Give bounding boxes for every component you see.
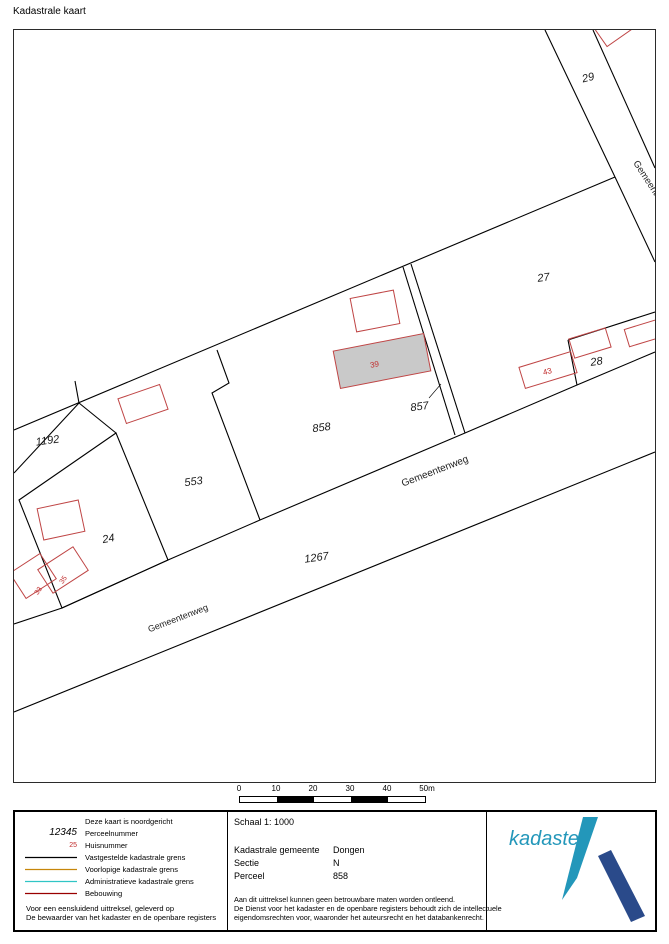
disclaimer-line-1: Aan dit uittreksel kunnen geen betrouwba… xyxy=(234,895,455,904)
parcel-label-1267: 1267 xyxy=(304,550,331,565)
house-numbers: 39 43 35 33 xyxy=(34,359,554,596)
parcel-label-857: 857 xyxy=(410,400,431,415)
parcel-label-24: 24 xyxy=(100,532,115,546)
scale-tick: 0 xyxy=(237,784,241,793)
footer-divider-1 xyxy=(227,812,228,930)
scale-tick: 30 xyxy=(346,784,355,793)
legend-label-voorlopige-grens: Voorlopige kadastrale grens xyxy=(85,865,178,874)
info-value-sectie: N xyxy=(333,858,340,868)
legend-label-administratieve-grens: Administratieve kadastrale grens xyxy=(85,877,194,886)
parcel-label-1192: 1192 xyxy=(35,433,60,448)
parcel-boundaries xyxy=(14,30,655,712)
scale-tick: 40 xyxy=(383,784,392,793)
boundary-line xyxy=(75,381,79,403)
parcel-labels: 29 27 28 858 857 553 1192 24 1267 xyxy=(35,71,604,566)
map-frame: 29 27 28 858 857 553 1192 24 1267 39 43 … xyxy=(13,29,656,783)
legend-symbol-voorlopige-grens xyxy=(25,868,77,871)
parcel-label-29: 29 xyxy=(580,71,596,86)
scale-text: Schaal 1: 1000 xyxy=(234,817,294,827)
scale-segment xyxy=(277,797,314,802)
parcel-label-28: 28 xyxy=(589,355,605,369)
logo-k-leg-icon xyxy=(598,850,645,922)
footer-panel: Deze kaart is noordgericht 12345 Perceel… xyxy=(13,810,657,932)
legend-label-perceelnummer: Perceelnummer xyxy=(85,829,138,838)
legend-symbol-administratieve-grens xyxy=(25,880,77,883)
building-outline xyxy=(569,328,611,358)
road-labels: Gemeentenweg Gemeentenweg Gemeente xyxy=(146,159,655,635)
info-value-perceel: 858 xyxy=(333,871,348,881)
legend-note-2: De bewaarder van het kadaster en de open… xyxy=(26,913,216,922)
parcel-label-858: 858 xyxy=(312,421,333,436)
scale-tick-unit: 50m xyxy=(419,784,435,793)
info-label-gemeente: Kadastrale gemeente xyxy=(234,845,320,855)
parcel-label-553: 553 xyxy=(184,475,205,490)
boundary-line xyxy=(568,340,577,385)
scale-segment xyxy=(351,797,388,802)
road-upper-boundary xyxy=(14,352,655,624)
scale-segment xyxy=(314,797,351,802)
scale-segment xyxy=(388,797,425,802)
boundary-line xyxy=(593,30,655,168)
house-number-43: 43 xyxy=(542,366,553,377)
scale-tick: 20 xyxy=(309,784,318,793)
building-39 xyxy=(333,334,431,389)
leader-line-857 xyxy=(429,384,441,398)
scale-bar: 0 10 20 30 40 50m xyxy=(225,784,440,806)
road-label-gemeente-clipped: Gemeente xyxy=(630,159,655,202)
road-label-gemeentenweg-1: Gemeentenweg xyxy=(400,454,470,490)
kadaster-logo: kadaster xyxy=(495,812,653,926)
legend-symbol-vastgestelde-grens xyxy=(25,856,77,859)
kadaster-logo-text: kadaster xyxy=(509,828,587,850)
buildings xyxy=(14,30,655,598)
info-value-gemeente: Dongen xyxy=(333,845,365,855)
building-outline xyxy=(350,290,400,332)
building-outline xyxy=(624,317,655,346)
cadastral-extract-page: Kadastrale kaart xyxy=(0,0,669,944)
page-title: Kadastrale kaart xyxy=(13,6,86,17)
legend-label-huisnummer: Huisnummer xyxy=(85,841,128,850)
road-lower-boundary xyxy=(14,452,655,712)
map-canvas: 29 27 28 858 857 553 1192 24 1267 39 43 … xyxy=(14,30,655,782)
building-outline xyxy=(118,385,168,424)
scale-segment xyxy=(240,797,277,802)
legend-label-vastgestelde-grens: Vastgestelde kadastrale grens xyxy=(85,853,185,862)
legend-symbol-perceelnummer: 12345 xyxy=(25,827,77,838)
disclaimer-line-2: De Dienst voor het kadaster en de openba… xyxy=(234,904,502,913)
disclaimer-line-3: eigendomsrechten voor, waaronder het aut… xyxy=(234,913,484,922)
parcel-label-27: 27 xyxy=(536,271,552,285)
legend-symbol-bebouwing xyxy=(25,892,77,895)
legend-symbol-huisnummer: 25 xyxy=(25,842,77,849)
building-outline xyxy=(589,30,652,47)
scale-bar-ruler xyxy=(239,796,426,803)
boundary-line xyxy=(14,177,615,430)
info-label-perceel: Perceel xyxy=(234,871,265,881)
legend-note-1: Voor een eensluidend uittreksel, gelever… xyxy=(26,904,174,913)
scale-tick: 10 xyxy=(272,784,281,793)
legend-label-bebouwing: Bebouwing xyxy=(85,889,122,898)
legend-label-noordgericht: Deze kaart is noordgericht xyxy=(85,817,173,826)
road-label-gemeentenweg-2: Gemeentenweg xyxy=(146,602,209,634)
boundary-line xyxy=(545,30,615,177)
parcel-24-boundary xyxy=(19,433,168,608)
info-label-sectie: Sectie xyxy=(234,858,259,868)
boundary-line xyxy=(212,350,260,520)
boundary-line xyxy=(79,403,116,433)
building-outline xyxy=(37,500,85,540)
